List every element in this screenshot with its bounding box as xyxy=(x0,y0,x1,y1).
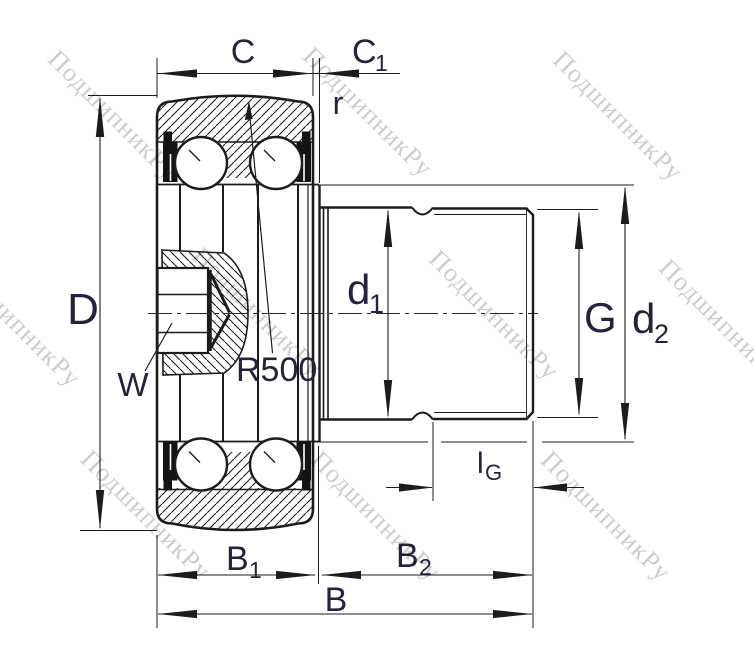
seal-top-left-lip xyxy=(164,132,173,143)
arrow-d1-top xyxy=(384,209,392,247)
label-D: D xyxy=(67,285,99,334)
relief-groove-bottom xyxy=(412,413,433,420)
bearing-cross-section-drawing: D C C 1 r R500 W d 1 G d 2 l G B 1 B 2 B… xyxy=(0,0,754,652)
arrow-d1-bottom xyxy=(384,380,392,418)
label-W: W xyxy=(117,366,149,403)
seal-bottom-left-lip xyxy=(164,480,173,491)
hatch-band-top xyxy=(157,90,313,142)
label-G: G xyxy=(584,294,617,341)
ball-bottom-right xyxy=(250,439,302,491)
arrow-lG-left xyxy=(399,483,433,491)
label-d1-sub: 1 xyxy=(369,289,384,319)
label-B1-sub: 1 xyxy=(249,557,262,583)
label-C1-sub: 1 xyxy=(375,50,388,76)
relief-groove-top xyxy=(412,208,433,215)
arrow-B2-left xyxy=(322,571,362,579)
bearing-drawing-page: D C C 1 r R500 W d 1 G d 2 l G B 1 B 2 B… xyxy=(0,0,754,652)
arrow-G-bottom xyxy=(575,378,583,416)
seal-top-right-lip xyxy=(302,132,311,143)
ball-top-right xyxy=(250,137,302,189)
arrow-D-bottom xyxy=(96,490,104,530)
label-B: B xyxy=(325,581,348,619)
watermark-text: ПодшипникРу xyxy=(305,445,446,586)
ball-bottom-left xyxy=(175,439,227,491)
label-C: C xyxy=(231,33,256,71)
hex-socket-bore xyxy=(158,268,209,353)
label-lG-main: l xyxy=(477,447,484,480)
label-d2-sub: 2 xyxy=(654,319,669,349)
arrow-B2-right xyxy=(493,571,533,579)
watermark-text: ПодшипникРу xyxy=(547,45,688,186)
stud-shoulder-lines xyxy=(324,208,329,420)
label-d2-main: d xyxy=(632,295,655,342)
arrow-G-top xyxy=(575,211,583,249)
arrow-B-left xyxy=(158,610,198,618)
label-lG-sub: G xyxy=(485,460,502,485)
arrow-B1-right xyxy=(276,571,316,579)
label-B1-main: B xyxy=(226,540,249,578)
seal-bottom-right-lip xyxy=(302,480,311,491)
label-d1-main: d xyxy=(347,266,370,313)
arrow-C-left xyxy=(158,69,198,77)
arrow-B-right xyxy=(493,610,533,618)
arrow-d2-top xyxy=(621,186,629,224)
arrow-d2-bottom xyxy=(621,403,629,441)
label-C1-main: C xyxy=(352,33,377,71)
watermark-text: ПодшипникРу xyxy=(423,244,564,385)
watermark-text: ПодшипникРу xyxy=(535,445,676,586)
